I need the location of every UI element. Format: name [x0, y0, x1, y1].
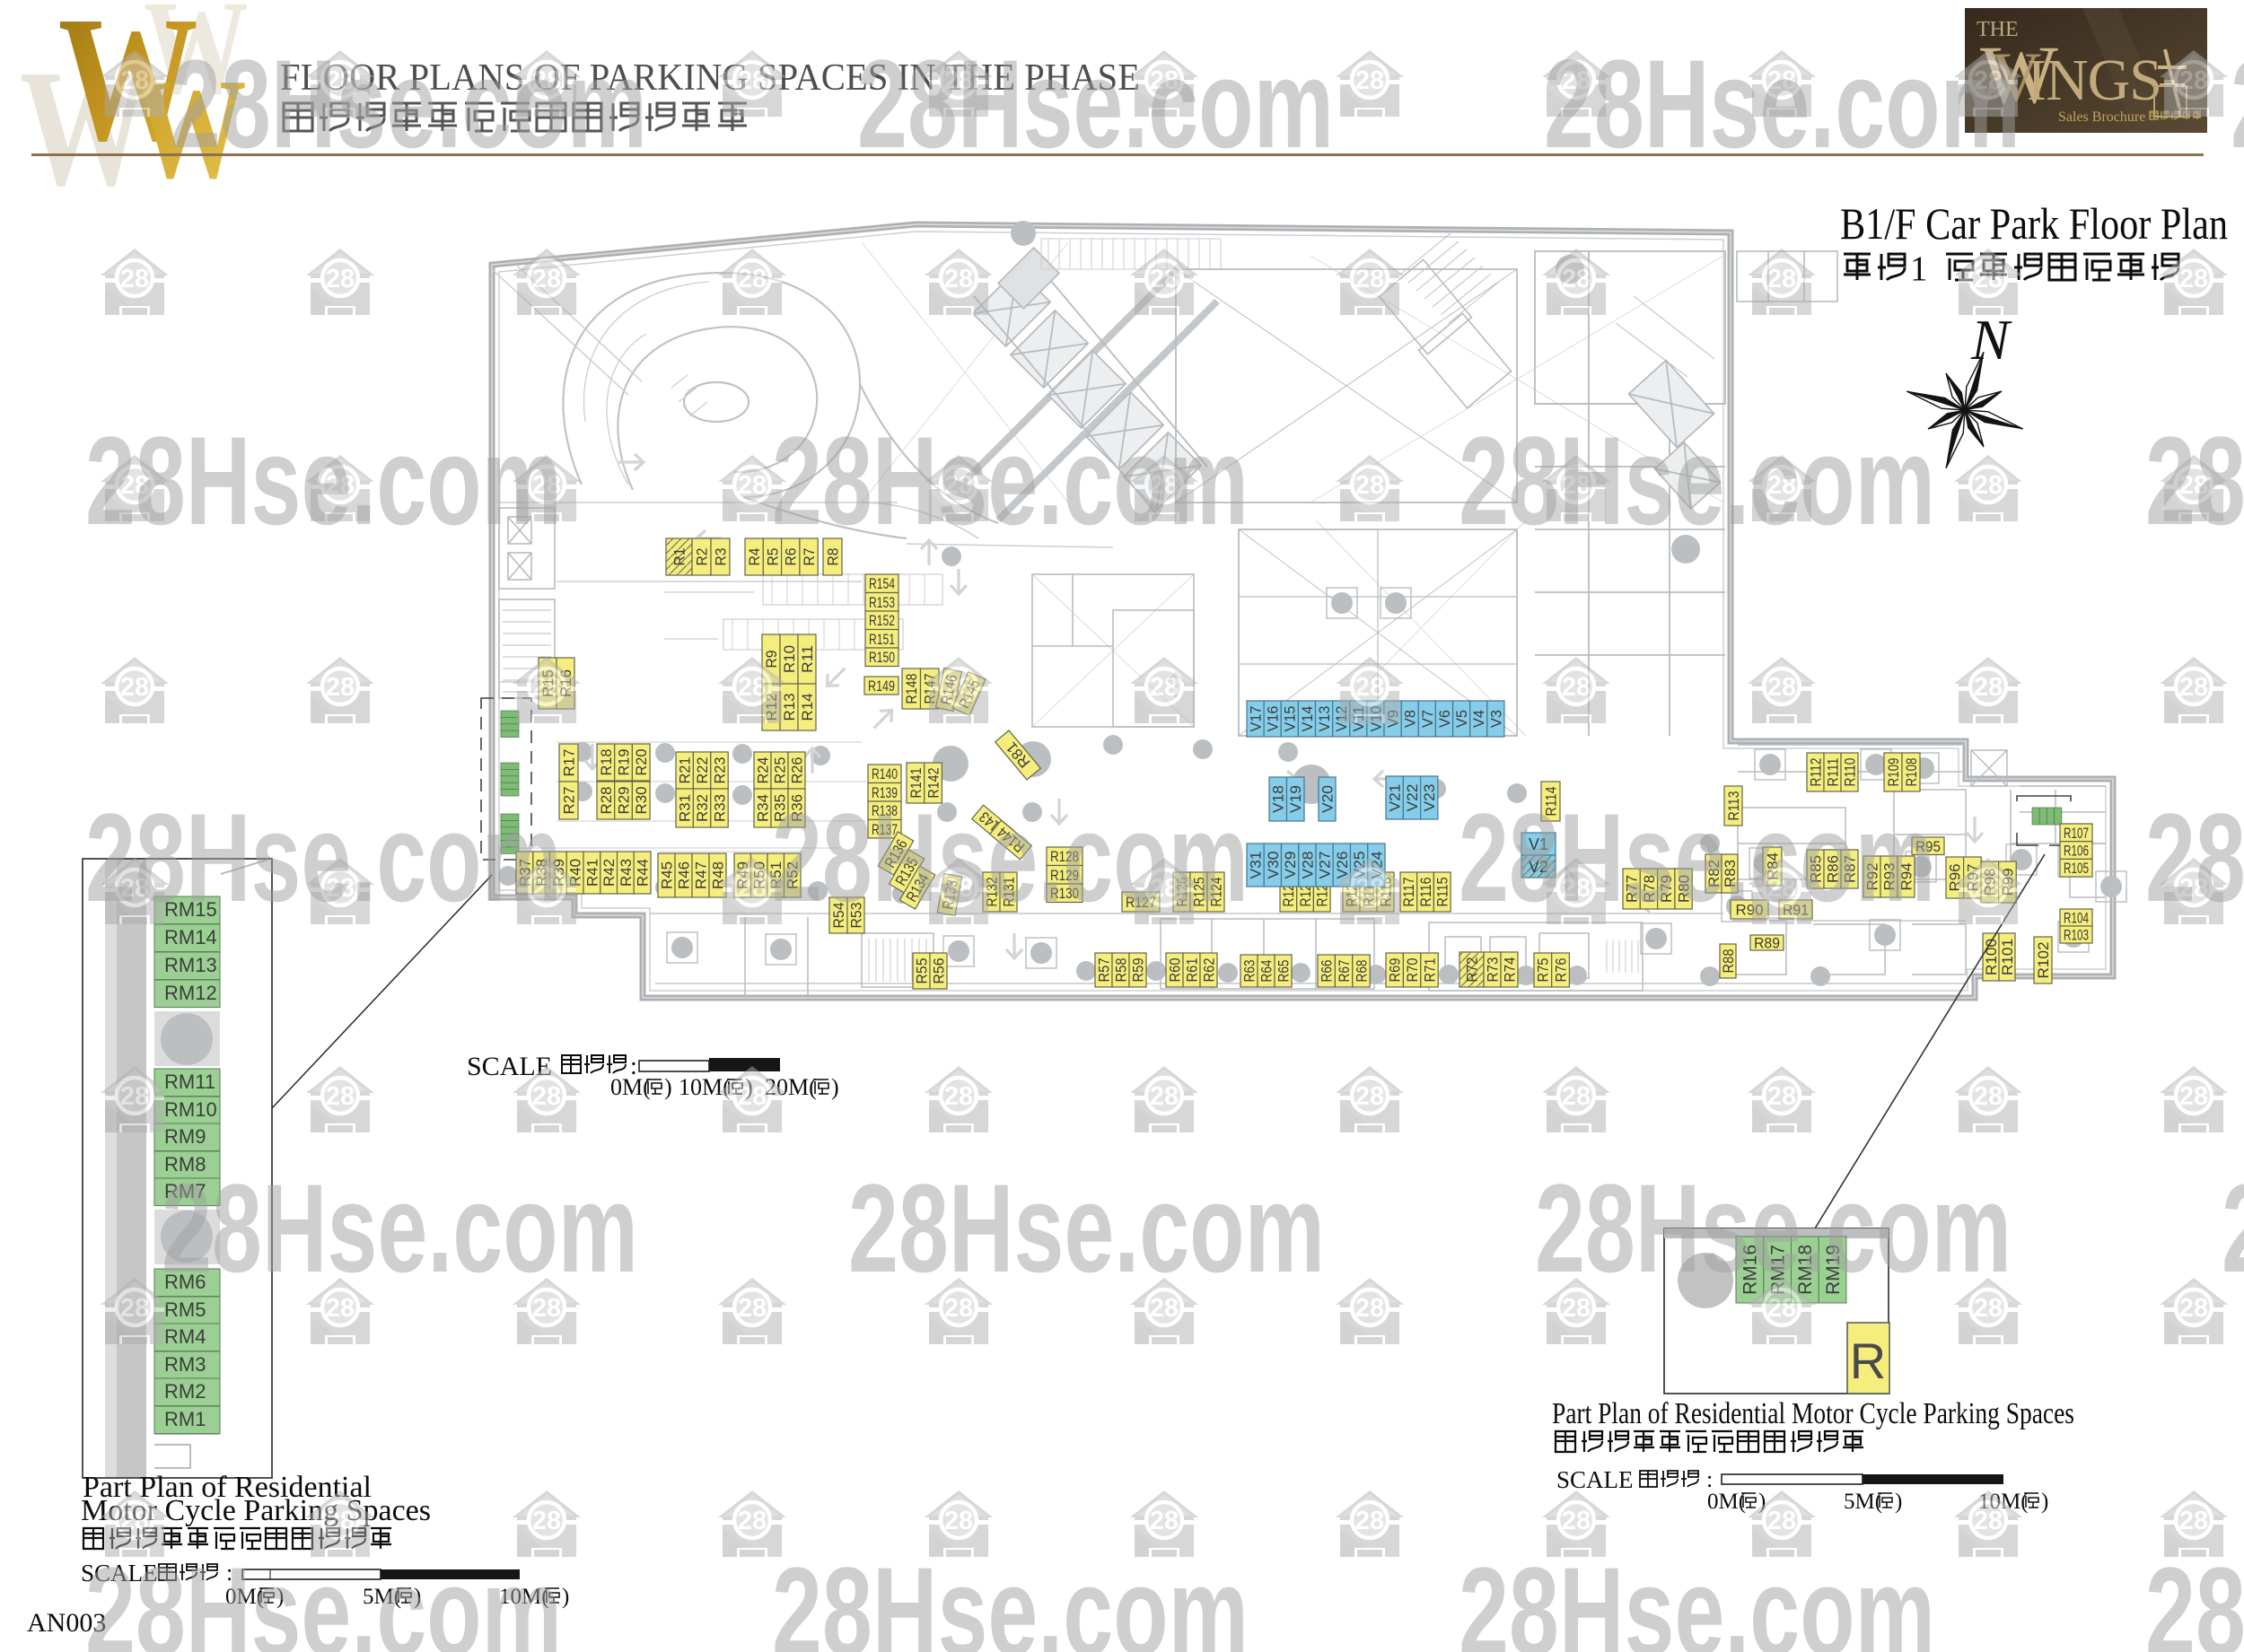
- svg-text:R108: R108: [1903, 758, 1920, 787]
- svg-text:V20: V20: [1319, 785, 1336, 813]
- svg-text:R105: R105: [2064, 860, 2089, 877]
- svg-text:R112: R112: [1807, 758, 1824, 787]
- svg-text:R153: R153: [869, 594, 895, 611]
- svg-text:R29: R29: [616, 787, 633, 815]
- svg-text:): ): [2041, 1490, 2048, 1514]
- svg-text:R22: R22: [694, 757, 711, 784]
- svg-text:R18: R18: [598, 749, 615, 776]
- svg-text:N: N: [1970, 308, 2012, 371]
- svg-text:R47: R47: [692, 861, 709, 889]
- svg-text:R1: R1: [671, 548, 688, 566]
- svg-text:28Hse.com: 28Hse.com: [857, 33, 1334, 174]
- svg-text:RM5: RM5: [164, 1298, 206, 1321]
- svg-text:V3: V3: [1487, 710, 1504, 728]
- svg-text:1: 1: [1910, 249, 1928, 288]
- svg-text:R27: R27: [560, 787, 577, 815]
- svg-text:V23: V23: [1421, 784, 1438, 812]
- svg-text:R31: R31: [677, 794, 694, 822]
- svg-text:28Hse.com: 28Hse.com: [772, 1541, 1249, 1652]
- svg-text:SCALE: SCALE: [1556, 1466, 1634, 1493]
- svg-text:R152: R152: [869, 612, 895, 629]
- svg-text:RM13: RM13: [164, 954, 217, 976]
- svg-text:28Hse.com: 28Hse.com: [1459, 1541, 1935, 1652]
- svg-text:R30: R30: [633, 787, 650, 815]
- svg-text:RM1: RM1: [164, 1408, 206, 1430]
- svg-text:R44: R44: [635, 859, 652, 887]
- svg-text:V13: V13: [1316, 706, 1333, 732]
- svg-text:R61: R61: [1183, 958, 1200, 983]
- svg-text:V22: V22: [1404, 784, 1421, 812]
- svg-text:R88: R88: [1720, 949, 1737, 974]
- svg-text:R9: R9: [763, 651, 780, 669]
- svg-text:RM9: RM9: [164, 1125, 206, 1148]
- svg-text:R116: R116: [1417, 878, 1434, 907]
- svg-text:R58: R58: [1112, 958, 1129, 983]
- svg-text:R23: R23: [711, 757, 728, 784]
- svg-text:R21: R21: [677, 757, 694, 784]
- svg-text:28Hse.com: 28Hse.com: [1459, 787, 1935, 928]
- svg-text:R104: R104: [2064, 909, 2089, 926]
- svg-text:R10: R10: [781, 645, 798, 673]
- svg-text:R4: R4: [746, 548, 763, 566]
- svg-text:R154: R154: [869, 575, 895, 592]
- svg-text:Sales Brochure: Sales Brochure: [2058, 109, 2145, 125]
- svg-text:R150: R150: [869, 649, 895, 666]
- svg-text:RM14: RM14: [164, 926, 217, 948]
- svg-text:R73: R73: [1484, 957, 1501, 983]
- svg-text:R149: R149: [868, 677, 895, 695]
- svg-text:R55: R55: [913, 958, 930, 984]
- svg-text:V8: V8: [1402, 710, 1419, 728]
- svg-text:28Hse.com: 28Hse.com: [85, 410, 562, 551]
- svg-text:0M(: 0M(: [1707, 1490, 1746, 1514]
- svg-text:R34: R34: [754, 794, 771, 822]
- svg-text:): ): [1895, 1490, 1902, 1514]
- svg-text:R148: R148: [903, 673, 920, 704]
- svg-text:R33: R33: [711, 794, 728, 822]
- svg-text:R45: R45: [658, 861, 675, 889]
- svg-text:R17: R17: [560, 749, 577, 777]
- svg-text:V29: V29: [1282, 852, 1299, 879]
- svg-text:R68: R68: [1353, 960, 1370, 983]
- svg-text:28Hse.com: 28Hse.com: [85, 787, 562, 928]
- svg-text:V6: V6: [1436, 710, 1453, 728]
- svg-text:28Hse.com: 28Hse.com: [2145, 787, 2244, 928]
- svg-text:R101: R101: [1999, 939, 2016, 975]
- svg-text:R71: R71: [1421, 958, 1438, 983]
- svg-text:R28: R28: [598, 787, 615, 815]
- svg-text:R66: R66: [1319, 960, 1336, 983]
- svg-text:28Hse.com: 28Hse.com: [2222, 1158, 2244, 1298]
- svg-text:RM3: RM3: [164, 1353, 206, 1376]
- svg-text:R60: R60: [1166, 958, 1183, 983]
- svg-text:R151: R151: [869, 631, 895, 648]
- svg-text:R115: R115: [1434, 878, 1451, 907]
- svg-text:28Hse.com: 28Hse.com: [848, 1158, 1325, 1298]
- svg-text:V5: V5: [1453, 710, 1470, 728]
- svg-text:R65: R65: [1275, 960, 1292, 983]
- svg-text:R32: R32: [694, 794, 711, 822]
- svg-text:R62: R62: [1200, 958, 1217, 983]
- svg-text:R107: R107: [2064, 825, 2089, 842]
- svg-text:R110: R110: [1841, 758, 1858, 787]
- svg-text:B1/F Car Park Floor Plan: B1/F Car Park Floor Plan: [1840, 198, 2228, 249]
- svg-text:V21: V21: [1387, 784, 1404, 812]
- svg-text:R20: R20: [633, 749, 650, 776]
- svg-text:R63: R63: [1240, 960, 1258, 983]
- svg-text::: :: [1706, 1466, 1713, 1492]
- svg-text:R26: R26: [788, 757, 805, 784]
- svg-text:28Hse.com: 28Hse.com: [772, 410, 1249, 551]
- svg-text:): ): [562, 1585, 569, 1609]
- svg-text:28Hse.com: 28Hse.com: [1459, 410, 1935, 551]
- svg-text:Part Plan of Residential Motor: Part Plan of Residential Motor Cycle Par…: [1552, 1397, 2074, 1430]
- svg-text:28Hse.com: 28Hse.com: [171, 33, 647, 174]
- svg-text:R70: R70: [1404, 958, 1421, 983]
- svg-text:5M(: 5M(: [1844, 1490, 1882, 1514]
- svg-text:R67: R67: [1336, 960, 1353, 983]
- svg-text:): ): [664, 1074, 672, 1100]
- svg-text:V31: V31: [1248, 852, 1265, 879]
- svg-text:R43: R43: [618, 859, 635, 887]
- svg-text:R19: R19: [616, 749, 633, 776]
- svg-text:V14: V14: [1299, 706, 1316, 732]
- svg-text:R75: R75: [1535, 958, 1552, 983]
- svg-text:V28: V28: [1299, 852, 1316, 879]
- svg-text:R102: R102: [2035, 942, 2052, 979]
- svg-text:R76: R76: [1552, 958, 1569, 983]
- svg-text:28Hse.com: 28Hse.com: [1535, 1158, 2012, 1298]
- svg-text:V19: V19: [1287, 785, 1304, 813]
- svg-text:R89: R89: [1754, 934, 1780, 951]
- svg-text:RM4: RM4: [164, 1325, 206, 1348]
- svg-text:28Hse.com: 28Hse.com: [772, 787, 1249, 928]
- svg-text:RM2: RM2: [164, 1380, 206, 1403]
- svg-text:28Hse.com: 28Hse.com: [1544, 33, 2020, 174]
- svg-text:R14: R14: [799, 694, 816, 721]
- svg-text:R24: R24: [754, 757, 771, 784]
- svg-text:V15: V15: [1282, 706, 1299, 732]
- svg-text:28Hse.com: 28Hse.com: [2145, 410, 2244, 551]
- svg-text:): ): [831, 1074, 839, 1100]
- svg-text:R3: R3: [712, 548, 729, 566]
- svg-text:V30: V30: [1265, 852, 1282, 879]
- svg-text:RM11: RM11: [164, 1071, 215, 1093]
- svg-text:R13: R13: [781, 694, 798, 721]
- svg-text:R74: R74: [1501, 957, 1518, 983]
- svg-text:R42: R42: [600, 859, 618, 887]
- svg-text:R25: R25: [771, 757, 788, 784]
- svg-text:V27: V27: [1317, 852, 1334, 879]
- svg-text:R69: R69: [1387, 958, 1404, 983]
- svg-text:R46: R46: [675, 861, 692, 889]
- svg-text:INGS: INGS: [2027, 48, 2161, 113]
- svg-text:R56: R56: [930, 958, 947, 984]
- svg-text:V16: V16: [1265, 706, 1282, 732]
- svg-text:V7: V7: [1419, 710, 1436, 728]
- svg-text:28Hse.com: 28Hse.com: [2145, 1541, 2244, 1652]
- svg-text:R59: R59: [1129, 958, 1146, 983]
- svg-text:V17: V17: [1248, 706, 1265, 732]
- svg-text:R57: R57: [1095, 958, 1112, 983]
- svg-text:R41: R41: [583, 859, 600, 887]
- svg-text:RM12: RM12: [164, 982, 217, 1004]
- svg-text:28Hse.com: 28Hse.com: [2231, 33, 2244, 174]
- svg-text:R103: R103: [2064, 926, 2089, 943]
- svg-text:R2: R2: [693, 548, 710, 566]
- svg-text:R72: R72: [1463, 957, 1480, 983]
- svg-text:R140: R140: [872, 765, 898, 782]
- svg-text:RM10: RM10: [164, 1098, 217, 1121]
- svg-text:28Hse.com: 28Hse.com: [85, 1541, 562, 1652]
- svg-text:R11: R11: [799, 645, 816, 673]
- svg-text:R117: R117: [1400, 878, 1417, 907]
- svg-text:V18: V18: [1270, 785, 1287, 813]
- svg-text:R111: R111: [1824, 758, 1841, 787]
- svg-text:R106: R106: [2064, 843, 2089, 860]
- svg-text:R100: R100: [1983, 939, 2000, 975]
- svg-text:R: R: [1850, 1333, 1886, 1389]
- svg-text:V4: V4: [1470, 710, 1487, 728]
- svg-text:V26: V26: [1334, 852, 1351, 879]
- svg-text:R64: R64: [1258, 960, 1275, 983]
- svg-text:28Hse.com: 28Hse.com: [162, 1158, 638, 1298]
- svg-text:0M(: 0M(: [610, 1074, 651, 1100]
- svg-text:R109: R109: [1885, 758, 1902, 787]
